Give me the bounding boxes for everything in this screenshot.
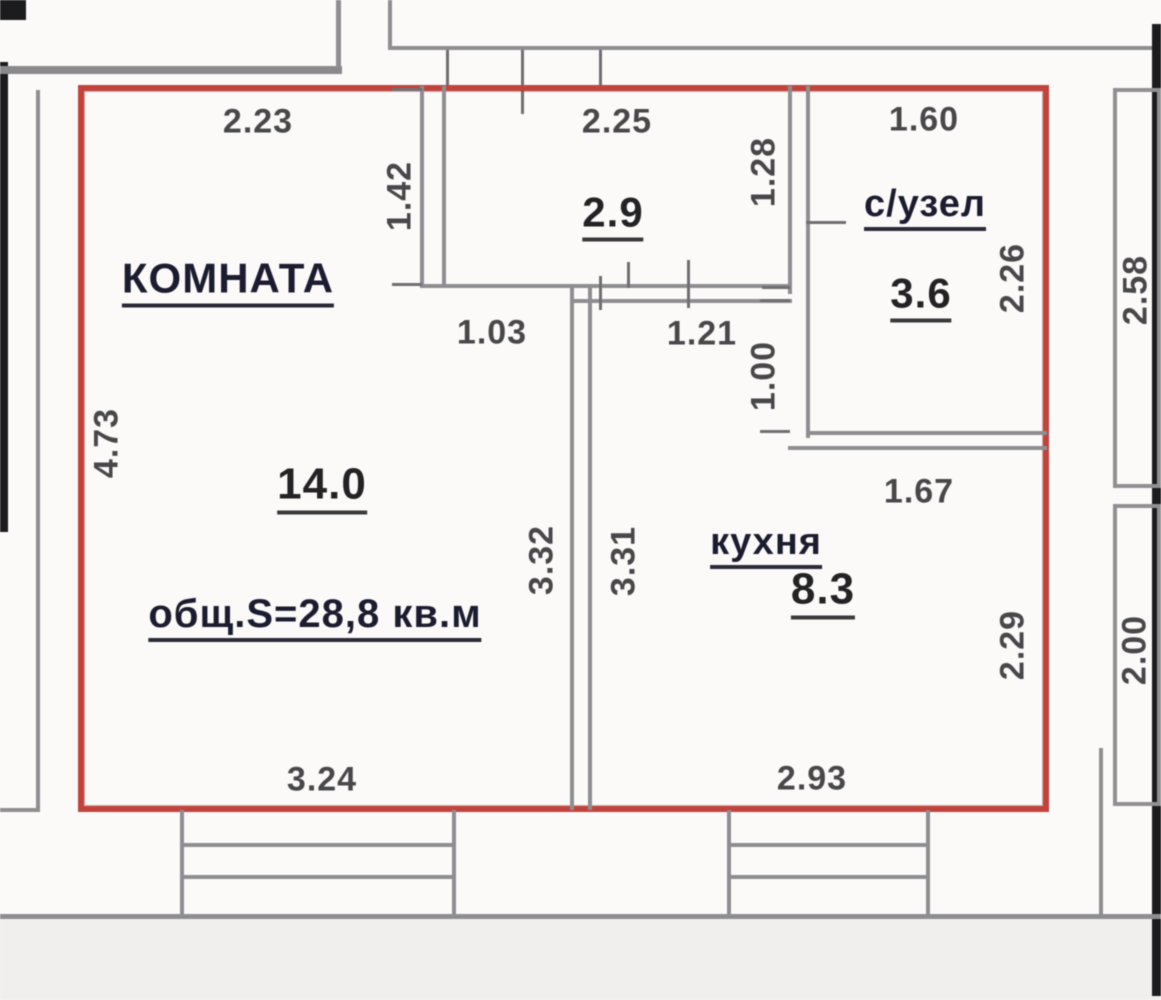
window-room-pane2	[180, 875, 456, 879]
window-kitchen-pane2	[727, 875, 930, 879]
tick-hall-left-bottom	[392, 283, 422, 286]
plan-canvas: 2.23 2.25 1.60 1.42 1.28 2.26 2.58 4.73 …	[0, 0, 1161, 1000]
total-area-label: общ.S=28,8 кв.м	[148, 592, 481, 642]
wall-bottom-right-stub	[1099, 748, 1103, 916]
dim-kitchen-right: 2.29	[994, 610, 1033, 680]
dim-top-bath: 1.60	[889, 101, 959, 140]
wall-hall-left-inner	[442, 86, 446, 288]
tick-entrance-left	[446, 50, 449, 88]
dim-top-hall: 2.25	[582, 103, 652, 142]
dim-bottom-room: 3.24	[287, 761, 357, 800]
dim-room-left: 4.73	[88, 408, 127, 478]
wall-stair-left	[388, 0, 392, 50]
window-kitchen-pane1	[727, 843, 930, 847]
dim-hall-left: 1.42	[381, 161, 420, 231]
bathroom-name: с/узел	[864, 183, 986, 231]
floor-plan: 2.23 2.25 1.60 1.42 1.28 2.26 2.58 4.73 …	[0, 0, 1161, 1000]
tick-door-room	[599, 276, 602, 310]
wall-black-topleft	[0, 0, 26, 20]
dim-top-room: 2.23	[223, 103, 293, 142]
tick-entrance-right	[599, 50, 602, 88]
dim-divider-kitchen-side: 3.31	[605, 526, 644, 596]
hallway-area: 2.9	[582, 189, 643, 242]
window-kitchen-right-edge	[926, 810, 930, 916]
window-kitchen-left-edge	[727, 810, 731, 916]
dim-neighbor-right-top: 2.58	[1117, 255, 1156, 325]
dim-bottom-kitchen: 2.93	[777, 760, 847, 799]
wall-black-left	[0, 62, 8, 532]
tick-door-kitchen-a	[627, 262, 630, 288]
kitchen-area: 8.3	[791, 565, 855, 620]
dim-divider-room-side: 3.32	[523, 525, 562, 595]
tick-bath-inner	[806, 221, 846, 224]
tick-bath-door-bottom	[760, 430, 790, 433]
wall-kitchen-top-lower	[570, 299, 792, 303]
window-room-left-edge	[180, 810, 184, 916]
wall-bath-bottom-lower	[788, 446, 1047, 450]
tick-bath-left-bottom	[762, 286, 790, 289]
bathroom-area: 3.6	[890, 270, 951, 323]
window-room-right-edge	[452, 810, 456, 916]
wall-bath-bottom-upper	[806, 431, 1047, 435]
tick-bath-door-top	[760, 299, 790, 302]
wall-corridor-top	[388, 46, 1152, 50]
dim-door-room: 1.03	[457, 314, 527, 353]
dim-neighbor-right-bottom: 2.00	[1116, 615, 1155, 685]
tick-hall-left-top	[392, 88, 422, 91]
dim-door-kitchen: 1.21	[667, 315, 737, 354]
facade-line-bottom	[0, 914, 1161, 919]
wall-hall-left-outer	[420, 86, 424, 288]
wall-divider-kitchen-side	[588, 288, 592, 810]
wall-left-neighbor	[36, 90, 40, 812]
wall-divider-room-side	[570, 288, 574, 810]
room-area: 14.0	[277, 460, 367, 515]
dim-bath-inner: 2.26	[994, 243, 1033, 313]
dim-bath-left: 1.28	[745, 137, 784, 207]
room-name: КОМНАТА	[122, 255, 334, 308]
wall-hall-bottom-upper	[420, 284, 792, 288]
kitchen-name: кухня	[710, 521, 822, 569]
ground-strip	[0, 919, 1161, 1000]
wall-topleft-unit-right	[336, 0, 341, 68]
wall-left-neighbor-bottom	[0, 808, 40, 812]
dim-bath-door: 1.00	[745, 341, 784, 411]
wall-bath-left-outer	[788, 86, 792, 294]
tick-door-kitchen-b	[687, 260, 690, 308]
dim-bath-bottom: 1.67	[884, 473, 954, 512]
window-room-pane1	[180, 843, 456, 847]
wall-topleft-unit-bottom	[0, 66, 342, 74]
wall-bath-left-inner	[806, 86, 810, 438]
